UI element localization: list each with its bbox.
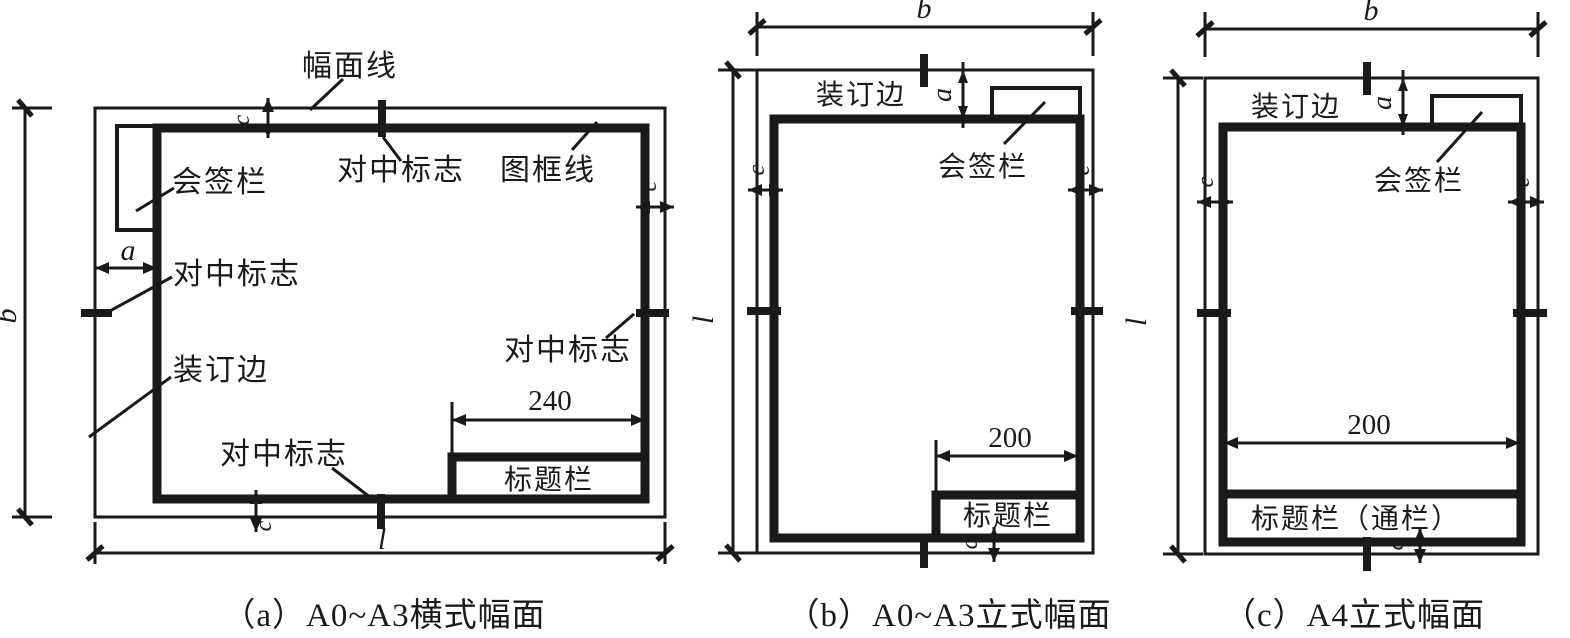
leader-centering-left-a — [108, 277, 172, 312]
label-frame-line-a: 图框线 — [500, 154, 596, 187]
label-centering-bottom-a: 对中标志 — [220, 438, 348, 471]
label-binding-edge-c: 装订边 — [1251, 91, 1341, 123]
leader-sheet-line-a — [310, 79, 343, 110]
sheet-line-c — [1205, 78, 1538, 554]
dim-binding-label-c: a — [1367, 96, 1398, 110]
dim-margin-bottom-label-a: c — [251, 520, 277, 531]
dim-binding-label-a: a — [121, 234, 136, 267]
dim-binding-arrow-up-c — [1398, 78, 1408, 91]
label-centering-top-a: 对中标志 — [337, 154, 465, 187]
label-title-block-c: 标题栏（通栏） — [1251, 503, 1461, 535]
diagram-b: b l a c c c 200 装订边 会签栏 标题栏 （b）A0~A3立式幅面 — [687, 0, 1112, 634]
dim-height-label-a: b — [0, 309, 23, 324]
caption-c: （c）A4立式幅面 — [1223, 597, 1485, 634]
dim-title-width-label-a: 240 — [528, 385, 572, 417]
label-centering-right-a: 对中标志 — [504, 334, 632, 367]
dim-width-label-c: b — [1364, 0, 1379, 27]
sheet-line-b — [757, 70, 1093, 553]
dim-width-label-b: b — [917, 0, 932, 25]
caption-b: （b）A0~A3立式幅面 — [786, 597, 1111, 634]
dim-margin-bottom-label-c: c — [1383, 539, 1409, 550]
signature-bar-box-c — [1432, 96, 1521, 127]
label-centering-left-a: 对中标志 — [173, 258, 301, 291]
label-title-block-b: 标题栏 — [963, 500, 1053, 532]
label-binding-edge-b: 装订边 — [816, 79, 906, 111]
label-sheet-line-a: 幅面线 — [302, 50, 398, 83]
dim-margin-bottom-label-b: c — [957, 538, 983, 549]
label-title-block-a: 标题栏 — [504, 464, 594, 496]
frame-line-b — [774, 119, 1080, 538]
label-signature-bar-a: 会签栏 — [172, 166, 268, 199]
dim-margin-right-label-b: c — [1069, 164, 1095, 175]
dim-margin-right-label-a: c — [636, 180, 662, 191]
signature-bar-box-a — [117, 126, 157, 230]
dim-binding-arrow-up-b — [958, 70, 968, 83]
dim-height-label-c: l — [1120, 318, 1153, 326]
dim-margin-top-label-a: c — [229, 114, 255, 125]
label-signature-bar-b: 会签栏 — [938, 151, 1028, 183]
label-binding-edge-a: 装订边 — [173, 354, 269, 387]
signature-bar-box-b — [992, 88, 1080, 119]
dim-margin-left-label-c: c — [1193, 176, 1219, 187]
diagram-c: b l a c c c 200 装订边 会签栏 标题栏（通栏） （c）A4立式幅… — [1120, 0, 1547, 634]
dim-title-width-label-b: 200 — [988, 422, 1032, 454]
technical-figure-svg: b l a c c c 240 幅面线 对中标志 图框线 会签栏 对中 — [0, 0, 1570, 638]
dim-height-label-b: l — [687, 316, 720, 324]
dim-margin-right-label-c: c — [1509, 176, 1535, 187]
leader-signature-bar-c — [1437, 112, 1482, 162]
dim-binding-label-b: a — [927, 88, 958, 102]
caption-a: （a）A0~A3横式幅面 — [222, 597, 545, 634]
drawing-sheet-formats-figure: b l a c c c 240 幅面线 对中标志 图框线 会签栏 对中 — [0, 0, 1570, 638]
dim-margin-left-label-b: c — [744, 164, 770, 175]
diagram-a: b l a c c c 240 幅面线 对中标志 图框线 会签栏 对中 — [0, 50, 674, 634]
dim-title-width-label-c: 200 — [1347, 409, 1391, 441]
dim-length-label-a: l — [378, 523, 386, 556]
frame-line-c — [1223, 127, 1521, 542]
label-signature-bar-c: 会签栏 — [1374, 165, 1464, 197]
